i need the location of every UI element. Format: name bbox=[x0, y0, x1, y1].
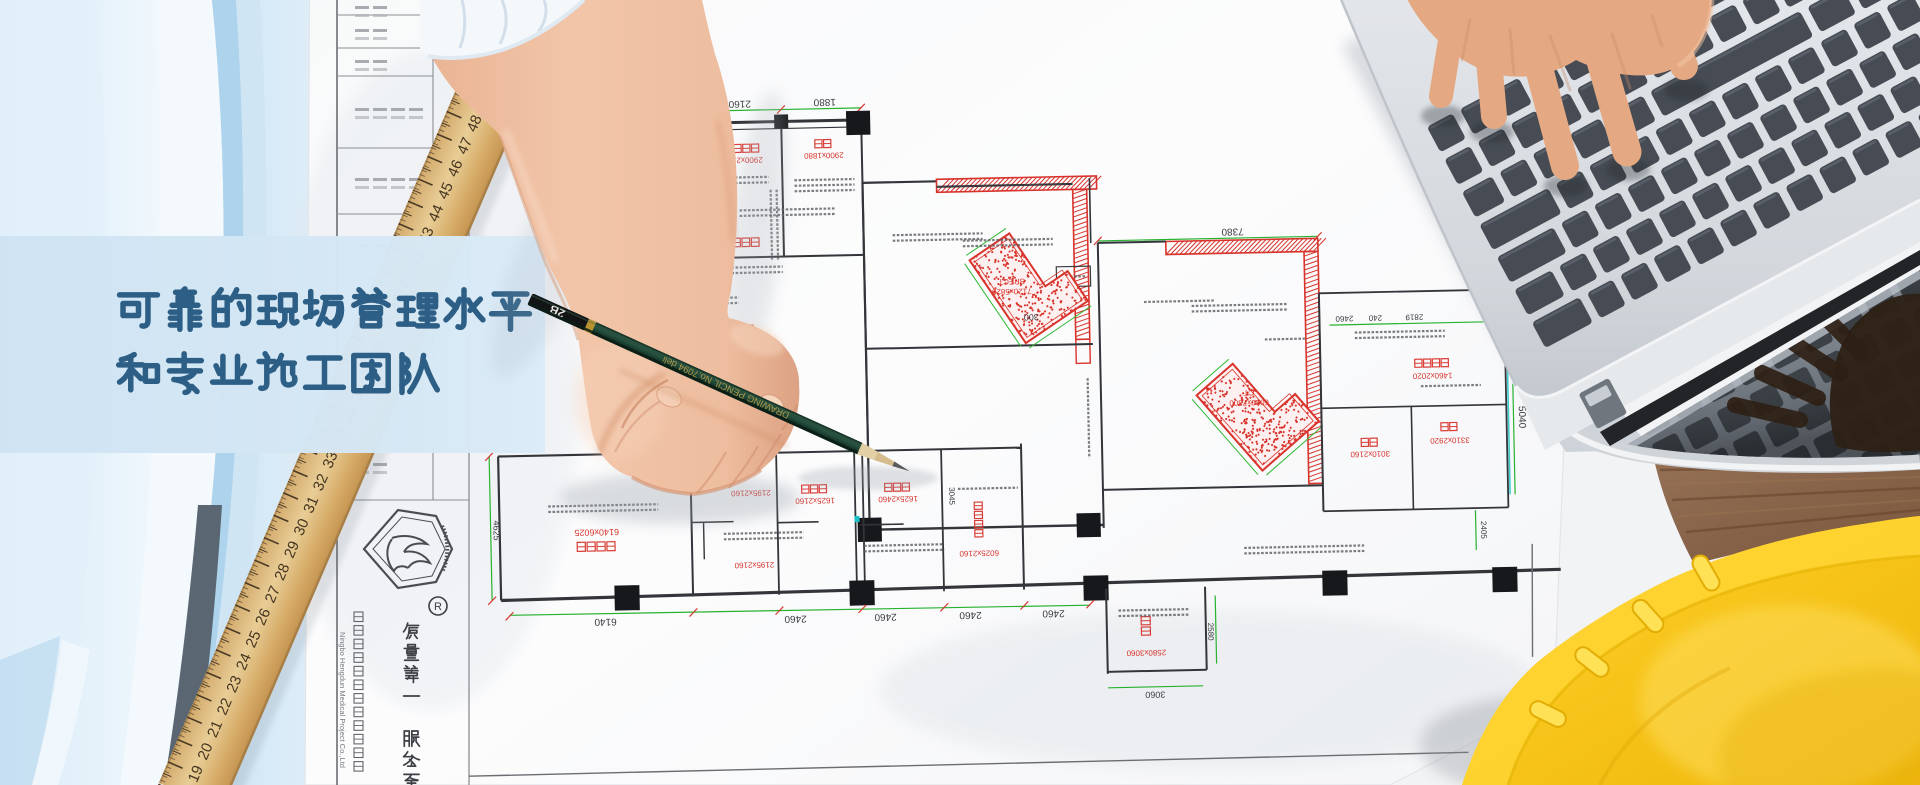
svg-text:5040: 5040 bbox=[1516, 406, 1527, 429]
svg-text:1625x2460: 1625x2460 bbox=[878, 494, 918, 504]
svg-text:6025x2160: 6025x2160 bbox=[959, 548, 999, 558]
svg-text:2460: 2460 bbox=[874, 611, 897, 622]
svg-text:300: 300 bbox=[1024, 312, 1039, 322]
svg-text:2160: 2160 bbox=[728, 98, 751, 109]
svg-text:R: R bbox=[434, 601, 442, 613]
svg-text:Ningbo Hengdun Medical Project: Ningbo Hengdun Medical Project Co.,Ltd bbox=[338, 632, 347, 768]
svg-text:SPECT: SPECT bbox=[998, 277, 1025, 287]
svg-text:2580x3060: 2580x3060 bbox=[1126, 648, 1166, 658]
svg-text:6080x7300: 6080x7300 bbox=[1229, 398, 1269, 408]
svg-text:4625: 4625 bbox=[491, 520, 501, 540]
svg-text:3010x2160: 3010x2160 bbox=[1350, 449, 1390, 459]
svg-text:240: 240 bbox=[1368, 313, 1382, 322]
svg-text:1880: 1880 bbox=[813, 96, 836, 107]
svg-text:3310x2920: 3310x2920 bbox=[1430, 435, 1470, 445]
svg-text:3045: 3045 bbox=[947, 487, 956, 506]
svg-text:2819: 2819 bbox=[1405, 312, 1424, 321]
svg-text:1460x2020: 1460x2020 bbox=[1412, 371, 1452, 381]
svg-text:7380: 7380 bbox=[1221, 225, 1244, 236]
svg-text:3060: 3060 bbox=[1145, 689, 1165, 699]
svg-text:CT: CT bbox=[1243, 388, 1254, 397]
svg-text:2460: 2460 bbox=[959, 609, 982, 620]
svg-text:2900x1880: 2900x1880 bbox=[803, 150, 843, 160]
svg-text:1625x2160: 1625x2160 bbox=[795, 496, 835, 506]
svg-text:6140: 6140 bbox=[594, 616, 617, 627]
svg-text:2460: 2460 bbox=[784, 613, 807, 624]
svg-text:2460: 2460 bbox=[1335, 314, 1354, 323]
svg-text:6140x6025: 6140x6025 bbox=[574, 527, 619, 538]
svg-text:2195x2160: 2195x2160 bbox=[734, 560, 774, 570]
svg-text:2405: 2405 bbox=[1479, 521, 1488, 540]
svg-text:7120x5820: 7120x5820 bbox=[991, 287, 1031, 297]
svg-text:2460: 2460 bbox=[1042, 607, 1065, 618]
svg-text:2580: 2580 bbox=[1206, 623, 1215, 642]
